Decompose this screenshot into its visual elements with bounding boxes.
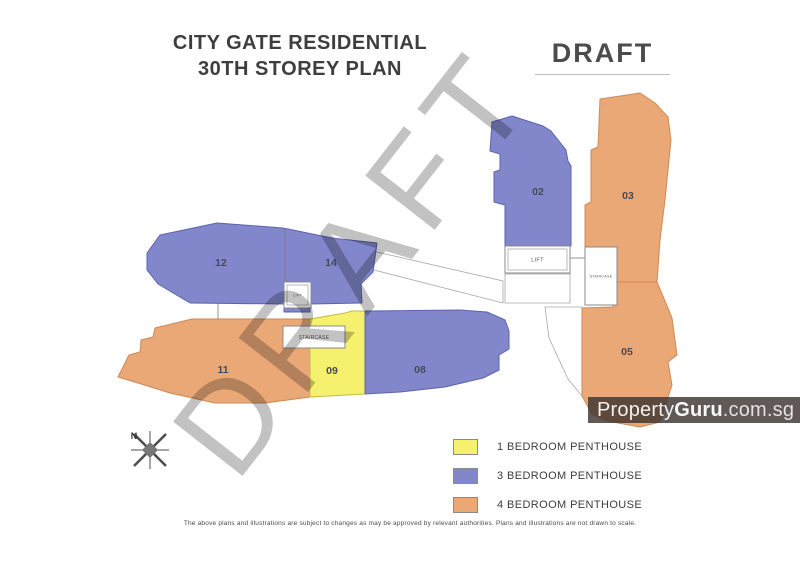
legend-label-4br: 4 BEDROOM PENTHOUSE: [497, 499, 642, 511]
floor-plan: N LIFTSTAIRCASELIFTSTAIRCASE121402031109…: [0, 0, 800, 564]
walkway-outline: [366, 250, 503, 303]
legend-label-3br: 3 BEDROOM PENTHOUSE: [497, 470, 642, 482]
staircase-label: STAIRCASE: [590, 274, 613, 278]
unit-02-label: 02: [532, 186, 544, 198]
block-11: [118, 319, 310, 403]
unit-12-label: 12: [215, 257, 227, 269]
unit-09-label: 09: [326, 365, 338, 377]
legend-row-1br: 1 BEDROOM PENTHOUSE: [453, 439, 642, 455]
block-02: [490, 116, 571, 246]
unit-05-label: 05: [621, 346, 633, 358]
brand-part-property: Property: [597, 399, 674, 421]
floor-plan-page: CITY GATE RESIDENTIAL 30TH STOREY PLAN D…: [0, 0, 800, 564]
legend-row-4br: 4 BEDROOM PENTHOUSE: [453, 497, 642, 513]
propertyguru-watermark: PropertyGuru.com.sg: [588, 397, 800, 423]
disclaimer-text: The above plans and illustrations are su…: [0, 520, 800, 527]
block-09: [310, 311, 365, 397]
lift-label: LIFT: [293, 293, 302, 297]
lift-label: LIFT: [531, 257, 544, 263]
brand-part-domain: .com.sg: [723, 399, 794, 421]
legend-label-1br: 1 BEDROOM PENTHOUSE: [497, 441, 642, 453]
unit-14-label: 14: [325, 257, 337, 269]
legend-swatch-3br: [453, 468, 478, 484]
legend: 1 BEDROOM PENTHOUSE 3 BEDROOM PENTHOUSE …: [453, 439, 642, 526]
unit-03-label: 03: [622, 190, 634, 202]
legend-swatch-4br: [453, 497, 478, 513]
block-12-14: [147, 223, 377, 312]
walkway-outline: [505, 274, 570, 303]
walkway-outline: [545, 307, 582, 396]
unit-08-label: 08: [414, 364, 426, 376]
block-08: [365, 310, 509, 394]
compass-north-label: N: [131, 431, 138, 441]
compass-rose-icon: N: [131, 431, 169, 469]
legend-swatch-1br: [453, 439, 478, 455]
legend-row-3br: 3 BEDROOM PENTHOUSE: [453, 468, 642, 484]
unit-11-label: 11: [217, 364, 228, 376]
staircase-label: STAIRCASE: [299, 335, 330, 341]
brand-part-guru: Guru: [674, 399, 723, 421]
